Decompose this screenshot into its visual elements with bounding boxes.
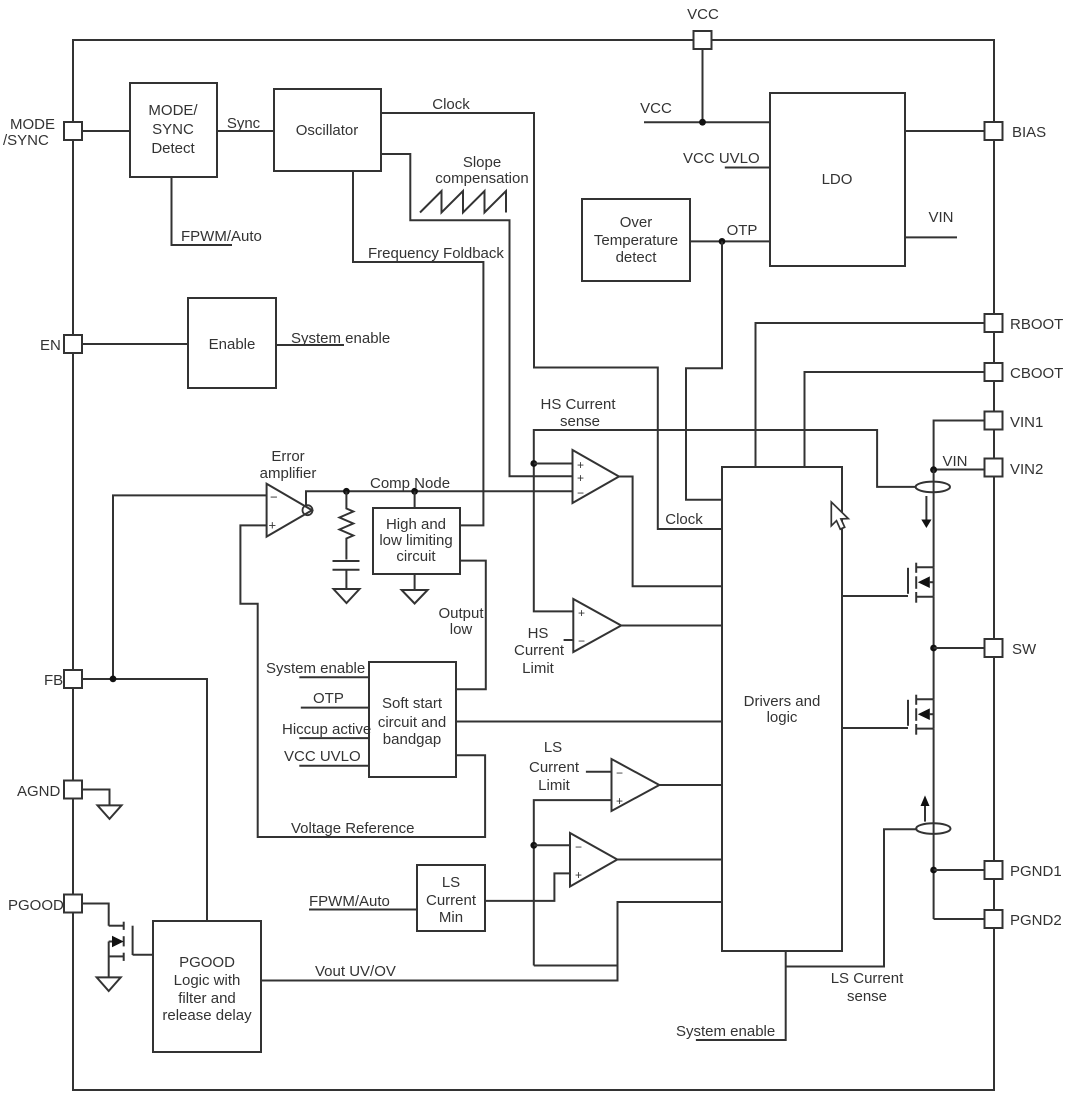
svg-text:sense: sense	[560, 413, 600, 430]
svg-text:VCC UVLO: VCC UVLO	[284, 748, 361, 765]
svg-text:FPWM/Auto: FPWM/Auto	[309, 893, 390, 910]
svg-text:LS: LS	[544, 739, 562, 756]
svg-text:Sync: Sync	[227, 115, 261, 132]
svg-text:detect: detect	[616, 249, 658, 266]
svg-text:Voltage Reference: Voltage Reference	[291, 820, 414, 837]
svg-text:HS: HS	[528, 625, 549, 642]
svg-text:+: +	[616, 794, 623, 808]
svg-text:logic: logic	[767, 709, 798, 726]
svg-text:Vout UV/OV: Vout UV/OV	[315, 963, 396, 980]
svg-text:release delay: release delay	[162, 1007, 252, 1024]
svg-text:AGND: AGND	[17, 783, 61, 800]
svg-text:VIN2: VIN2	[1010, 461, 1043, 478]
svg-text:+: +	[577, 458, 584, 472]
svg-text:bandgap: bandgap	[383, 731, 441, 748]
svg-text:Logic with: Logic with	[174, 972, 241, 989]
svg-text:+: +	[575, 868, 582, 882]
svg-text:Limit: Limit	[522, 660, 555, 677]
svg-text:FB: FB	[44, 672, 63, 689]
svg-text:−: −	[578, 634, 585, 648]
svg-text:−: −	[575, 840, 582, 854]
svg-text:VCC: VCC	[640, 100, 672, 117]
svg-text:Temperature: Temperature	[594, 232, 678, 249]
svg-text:−: −	[270, 490, 278, 505]
svg-text:Hiccup active: Hiccup active	[282, 721, 371, 738]
svg-text:Slope: Slope	[463, 154, 501, 171]
svg-text:+: +	[577, 471, 584, 485]
svg-text:Drivers and: Drivers and	[744, 693, 821, 710]
svg-text:System enable: System enable	[291, 330, 390, 347]
svg-text:compensation: compensation	[435, 170, 528, 187]
svg-text:+: +	[578, 606, 585, 620]
svg-text:Clock: Clock	[665, 511, 703, 528]
svg-text:MODE/: MODE/	[148, 102, 198, 119]
svg-text:VCC: VCC	[687, 6, 719, 23]
svg-text:Current: Current	[426, 892, 477, 909]
svg-text:System enable: System enable	[266, 660, 365, 677]
svg-text:VCC UVLO: VCC UVLO	[683, 150, 760, 167]
svg-text:PGND1: PGND1	[1010, 863, 1062, 880]
svg-text:circuit: circuit	[396, 548, 436, 565]
svg-text:LS Current: LS Current	[831, 970, 904, 987]
svg-text:/SYNC: /SYNC	[3, 132, 49, 149]
svg-text:High and: High and	[386, 516, 446, 533]
svg-text:Limit: Limit	[538, 777, 571, 794]
svg-text:VIN: VIN	[928, 209, 953, 226]
svg-text:Over: Over	[620, 214, 653, 231]
svg-text:sense: sense	[847, 988, 887, 1005]
svg-text:Comp Node: Comp Node	[370, 475, 450, 492]
svg-text:Enable: Enable	[209, 336, 256, 353]
svg-text:circuit and: circuit and	[378, 714, 446, 731]
svg-text:Oscillator: Oscillator	[296, 122, 359, 139]
svg-text:Soft start: Soft start	[382, 695, 443, 712]
svg-text:LDO: LDO	[822, 171, 853, 188]
svg-text:BIAS: BIAS	[1012, 124, 1046, 141]
svg-text:Detect: Detect	[151, 140, 195, 157]
svg-text:Error: Error	[271, 448, 304, 465]
svg-text:Clock: Clock	[432, 96, 470, 113]
svg-text:Min: Min	[439, 909, 463, 926]
svg-text:amplifier: amplifier	[260, 465, 317, 482]
svg-text:Current: Current	[514, 642, 565, 659]
svg-text:PGOOD: PGOOD	[8, 897, 64, 914]
svg-text:FPWM/Auto: FPWM/Auto	[181, 228, 262, 245]
svg-text:SYNC: SYNC	[152, 121, 194, 138]
svg-text:OTP: OTP	[727, 222, 758, 239]
svg-text:VIN: VIN	[942, 453, 967, 470]
svg-text:Frequency Foldback: Frequency Foldback	[368, 245, 504, 262]
svg-text:filter and: filter and	[178, 990, 236, 1007]
svg-text:−: −	[616, 766, 623, 780]
svg-text:SW: SW	[1012, 641, 1037, 658]
svg-text:EN: EN	[40, 337, 61, 354]
svg-text:−: −	[577, 486, 584, 500]
svg-text:+: +	[269, 518, 277, 533]
svg-text:OTP: OTP	[313, 690, 344, 707]
svg-text:HS Current: HS Current	[540, 396, 616, 413]
svg-text:RBOOT: RBOOT	[1010, 316, 1063, 333]
svg-text:CBOOT: CBOOT	[1010, 365, 1063, 382]
svg-text:PGND2: PGND2	[1010, 912, 1062, 929]
svg-text:Current: Current	[529, 759, 580, 776]
svg-text:Output: Output	[438, 605, 484, 622]
svg-text:low limiting: low limiting	[379, 532, 452, 549]
svg-text:System enable: System enable	[676, 1023, 775, 1040]
svg-text:PGOOD: PGOOD	[179, 954, 235, 971]
svg-text:VIN1: VIN1	[1010, 414, 1043, 431]
svg-text:low: low	[450, 621, 473, 638]
svg-text:LS: LS	[442, 874, 460, 891]
svg-text:MODE: MODE	[10, 116, 55, 133]
